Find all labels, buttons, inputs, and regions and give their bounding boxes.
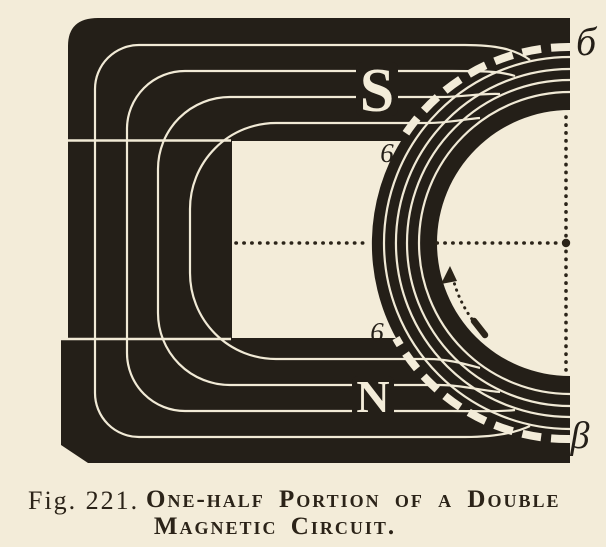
pole-label-n: N <box>356 371 389 422</box>
boundary-label-bottom-inner: 6 <box>370 317 384 347</box>
boundary-label-top-right: б <box>576 19 598 64</box>
magnetic-circuit-diagram: S N б 6 6 β <box>0 0 606 547</box>
boundary-label-bottom-right: β <box>570 415 590 457</box>
figure-scan: S N б 6 6 β Fig. 221. One-half Portion o… <box>0 0 606 547</box>
center-intersection-dot <box>562 239 570 247</box>
boundary-label-top-inner: 6 <box>380 138 394 168</box>
caption-title-line-1: One-half Portion of a Double <box>146 486 561 514</box>
caption-title-line-2: Magnetic Circuit. <box>0 513 550 541</box>
figure-number: Fig. 221. <box>28 486 139 516</box>
pole-label-s: S <box>360 57 394 125</box>
